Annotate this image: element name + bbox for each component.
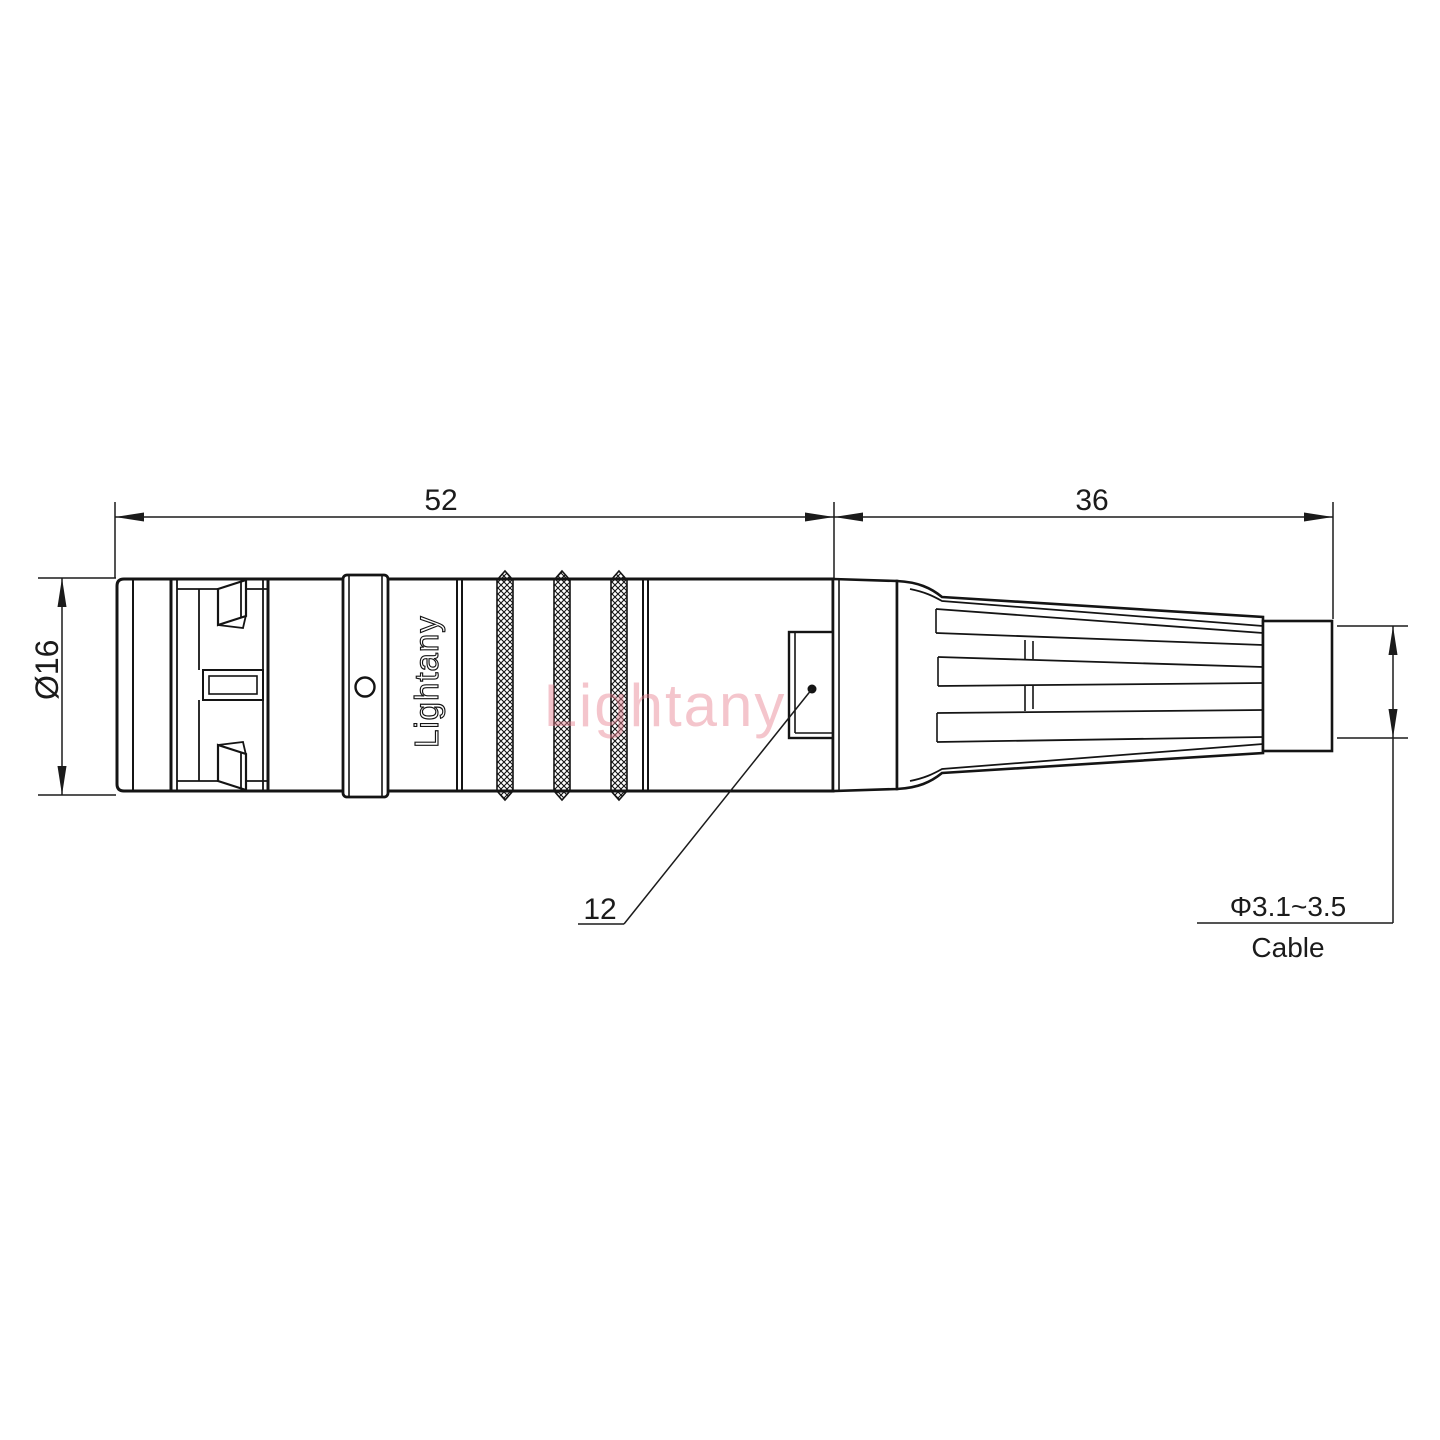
dim-cable-label: Cable bbox=[1251, 932, 1324, 963]
connector-technical-drawing: 52 36 Ø16 bbox=[0, 0, 1440, 1440]
watermark-text: Lightany bbox=[544, 672, 787, 739]
key-slot-outer bbox=[203, 670, 263, 700]
side-hole-icon bbox=[356, 678, 375, 697]
dim-cable-range-label: Φ3.1~3.5 bbox=[1230, 891, 1347, 922]
dim-diameter: Ø16 bbox=[29, 578, 116, 795]
arrowhead-down-icon bbox=[58, 766, 67, 795]
collar-ring bbox=[343, 575, 388, 797]
arrowhead-right-icon bbox=[1304, 513, 1333, 522]
strain-relief-boot bbox=[897, 581, 1332, 789]
dim-front-length-label: 52 bbox=[424, 484, 457, 517]
dim-window-label: 12 bbox=[583, 893, 616, 926]
backshell-nut bbox=[833, 579, 897, 791]
nut-outline bbox=[833, 579, 897, 791]
arrowhead-down-icon bbox=[1389, 709, 1398, 738]
cable-end-cap bbox=[1263, 621, 1332, 751]
dim-length-front: 52 bbox=[115, 484, 834, 579]
dim-diameter-label: Ø16 bbox=[29, 640, 65, 700]
arrowhead-left-icon bbox=[115, 513, 144, 522]
engraved-brand-text: Lightany bbox=[408, 615, 445, 748]
technical-drawing-canvas: 52 36 Ø16 bbox=[0, 0, 1440, 1440]
arrowhead-left-icon bbox=[834, 513, 863, 522]
arrowhead-up-icon bbox=[1389, 626, 1398, 655]
arrowhead-up-icon bbox=[58, 578, 67, 607]
arrowhead-right-icon bbox=[805, 513, 834, 522]
knurl-band bbox=[497, 571, 513, 800]
dim-back-length-label: 36 bbox=[1075, 484, 1108, 517]
